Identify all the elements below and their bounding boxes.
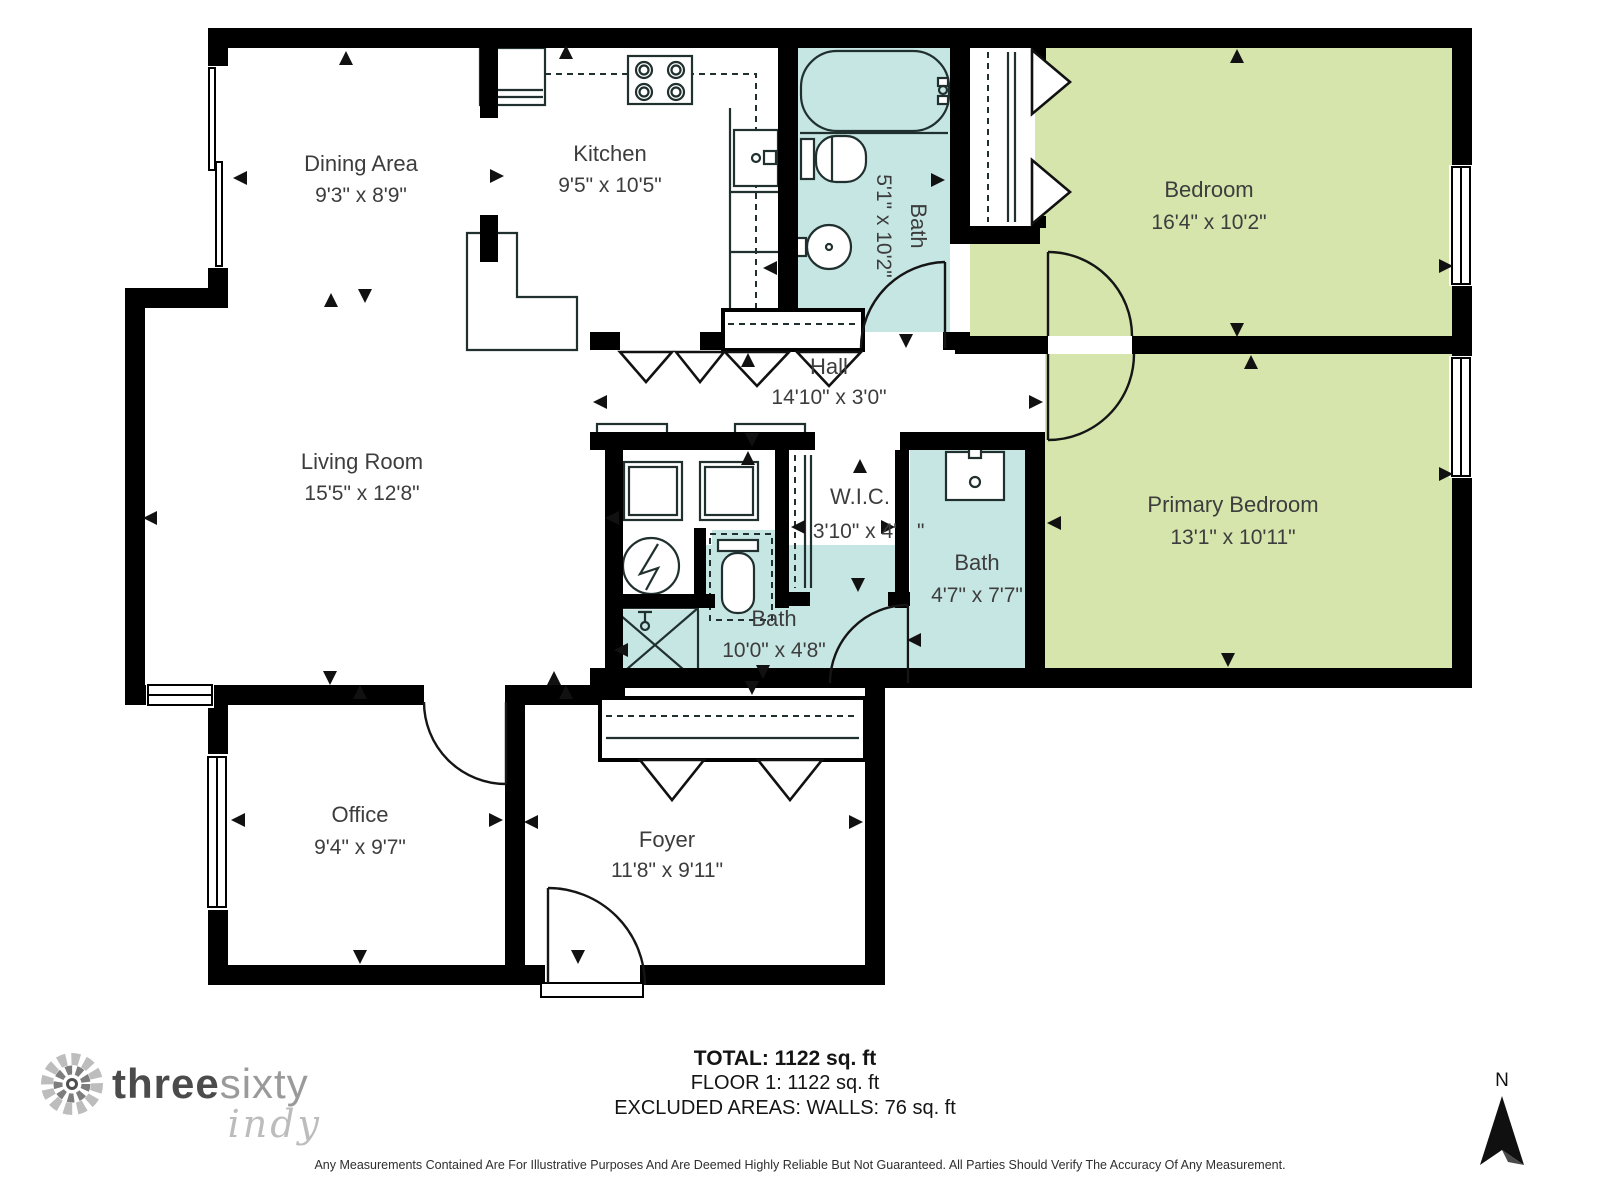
room-dims: 5'1" x 10'2" bbox=[872, 174, 895, 278]
bath-mid-sink-icon bbox=[946, 446, 1004, 500]
room-name: Foyer bbox=[639, 827, 695, 852]
stove-icon bbox=[628, 56, 692, 104]
kitchen-sink-icon bbox=[734, 130, 778, 186]
room-name: Primary Bedroom bbox=[1147, 492, 1318, 517]
dimension-arrow-icon bbox=[489, 813, 503, 827]
dimension-arrow-icon bbox=[791, 520, 805, 534]
north-label: N bbox=[1495, 1070, 1509, 1091]
bifold-door-icon bbox=[676, 352, 724, 382]
logo-wordmark: threesixty bbox=[112, 1060, 309, 1108]
room-dims: 15'5" x 12'8" bbox=[304, 482, 419, 505]
disclaimer-text: Any Measurements Contained Are For Illus… bbox=[0, 1158, 1600, 1172]
logo: threesixty indy bbox=[40, 1052, 340, 1146]
room-dims: 4'7" x 7'7" bbox=[931, 584, 1023, 607]
dimension-arrow-icon bbox=[353, 950, 367, 964]
window bbox=[205, 66, 231, 268]
window bbox=[205, 754, 231, 910]
door-arc bbox=[541, 888, 645, 997]
dimension-arrow-icon bbox=[490, 169, 504, 183]
room-name: Bath bbox=[751, 606, 796, 631]
dimension-arrow-icon bbox=[853, 459, 867, 473]
area-summary: TOTAL: 1122 sq. ft FLOOR 1: 1122 sq. ft … bbox=[485, 1046, 1085, 1121]
room-dims-suffix: " bbox=[917, 520, 924, 543]
logo-part1: three bbox=[112, 1060, 220, 1107]
window bbox=[1449, 356, 1475, 478]
bifold-door-icon bbox=[725, 352, 789, 386]
dimension-arrow-icon bbox=[571, 950, 585, 964]
room-label-foyer: Foyer 11'8" x 9'11" bbox=[611, 827, 723, 882]
logo-part2: sixty bbox=[220, 1060, 309, 1107]
floor-area: FLOOR 1: 1122 sq. ft bbox=[485, 1071, 1085, 1096]
dimension-arrow-icon bbox=[849, 815, 863, 829]
dimension-arrow-icon bbox=[741, 451, 755, 465]
total-area: TOTAL: 1122 sq. ft bbox=[485, 1046, 1085, 1071]
kitchen-fixtures bbox=[467, 48, 778, 350]
excluded-area: EXCLUDED AREAS: WALLS: 76 sq. ft bbox=[485, 1096, 1085, 1121]
floor-plan: Dining Area 9'3" x 8'9" Kitchen 9'5" x 1… bbox=[0, 0, 1600, 1035]
room-dims: 16'4" x 10'2" bbox=[1151, 211, 1266, 234]
bifold-door-icon bbox=[758, 760, 822, 800]
hall-closet bbox=[723, 310, 863, 350]
room-name: Kitchen bbox=[573, 141, 646, 166]
dimension-arrow-icon bbox=[339, 51, 353, 65]
foyer-closet bbox=[600, 698, 865, 760]
dimension-arrow-icon bbox=[593, 395, 607, 409]
room-dims: 3'10" x 4' bbox=[813, 520, 897, 543]
toilet-icon bbox=[801, 136, 866, 182]
dimension-arrow-icon bbox=[1029, 395, 1043, 409]
room-name: Dining Area bbox=[304, 151, 419, 176]
bedroom-fill-left bbox=[970, 244, 1035, 336]
room-dims: 9'5" x 10'5" bbox=[558, 174, 662, 197]
room-label-dining: Dining Area 9'3" x 8'9" bbox=[304, 151, 419, 207]
room-name: Bedroom bbox=[1164, 177, 1253, 202]
dryer-icon bbox=[700, 462, 758, 520]
room-label-kitchen: Kitchen 9'5" x 10'5" bbox=[558, 141, 662, 197]
dimension-arrow-icon bbox=[231, 813, 245, 827]
door-arc bbox=[424, 702, 506, 784]
dimension-arrow-icon bbox=[324, 293, 338, 307]
north-arrow-icon bbox=[1480, 1096, 1524, 1165]
room-name: Bath bbox=[906, 203, 931, 248]
room-label-office: Office 9'4" x 9'7" bbox=[314, 802, 406, 859]
bifold-door-icon bbox=[640, 760, 704, 800]
dimension-arrow-icon bbox=[358, 289, 372, 303]
logo-sunburst-icon bbox=[40, 1052, 104, 1116]
room-name: Bath bbox=[954, 550, 999, 575]
room-dims: 11'8" x 9'11" bbox=[611, 859, 723, 882]
room-label-living: Living Room 15'5" x 12'8" bbox=[301, 449, 423, 505]
room-dims: 14'10" x 3'0" bbox=[771, 386, 886, 409]
dimension-arrow-icon bbox=[524, 815, 538, 829]
window bbox=[1449, 165, 1475, 286]
room-name: Hall bbox=[810, 354, 848, 379]
dimension-arrow-icon bbox=[899, 334, 913, 348]
washer-icon bbox=[624, 462, 682, 520]
room-name: Office bbox=[331, 802, 388, 827]
dimension-arrow-icon bbox=[143, 511, 157, 525]
room-name: Living Room bbox=[301, 449, 423, 474]
dimension-arrow-icon bbox=[233, 171, 247, 185]
floor-plan-page: Dining Area 9'3" x 8'9" Kitchen 9'5" x 1… bbox=[0, 0, 1600, 1200]
room-dims: 9'4" x 9'7" bbox=[314, 836, 406, 859]
compass-north: N bbox=[1462, 1060, 1542, 1185]
window bbox=[146, 682, 214, 708]
room-dims: 10'0" x 4'8" bbox=[722, 639, 826, 662]
dimension-arrow-icon bbox=[547, 671, 561, 685]
dimension-arrow-icon bbox=[323, 671, 337, 685]
water-heater-icon bbox=[623, 538, 679, 594]
room-dims: 9'3" x 8'9" bbox=[315, 184, 407, 207]
bifold-door-icon bbox=[620, 352, 672, 382]
dimension-arrow-icon bbox=[763, 261, 777, 275]
room-dims: 13'1" x 10'11" bbox=[1170, 526, 1295, 549]
room-name: W.I.C. bbox=[830, 484, 890, 509]
